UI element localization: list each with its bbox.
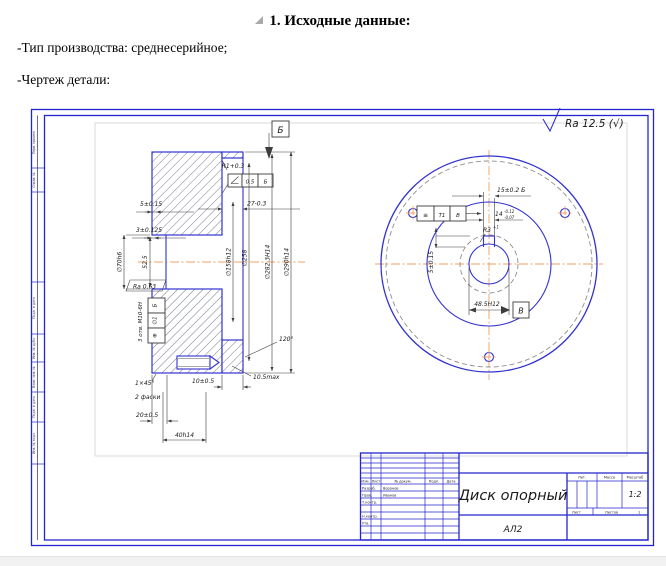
position-datum: Б (153, 303, 159, 307)
gdt-frame-position: Б ∅1 ⊕ 3 отв. М10-6H (138, 298, 165, 343)
roughness-text: Ra 12.5 (√) (565, 118, 624, 130)
sheets-value: 1 (638, 511, 640, 515)
svg-text:∅70h6: ∅70h6 (117, 252, 124, 273)
gdt-frame-slope: 0.5 Б (223, 174, 274, 193)
outline-collapse-icon[interactable] (255, 16, 263, 24)
frame-field-inv-podl: Инв. № подл. (32, 432, 36, 454)
row-razrab-name: Воронов (383, 487, 398, 491)
frame-field-inv-dubl: Инв. № дубл. (32, 337, 36, 359)
svg-text:20±0.5: 20±0.5 (136, 412, 158, 419)
svg-text:15±0.2 Б: 15±0.2 Б (497, 187, 525, 194)
svg-text:52.5: 52.5 (142, 255, 149, 269)
general-roughness-note: Ra 12.5 (√) (543, 108, 624, 131)
dim-r3: R3 +1 (480, 225, 499, 243)
slope-datum: Б (264, 180, 268, 186)
row-utv: Утв. (362, 522, 369, 526)
frame-field-podp-data-1: Подп. и дата (32, 297, 36, 319)
dim-r1: R1+0.3 (222, 161, 245, 170)
scale-value: 1:2 (629, 490, 642, 499)
svg-text:5±0.15: 5±0.15 (428, 251, 435, 273)
sheets-label: Листов (605, 511, 618, 515)
document-page: 1. Исходные данные: -Тип производства: с… (0, 0, 666, 566)
row-nkontr: Н.контр. (362, 515, 378, 519)
svg-text:48.5H12: 48.5H12 (474, 301, 500, 308)
part-material: АЛ2 (503, 525, 523, 535)
row-prov: Пров. (362, 494, 372, 498)
part-name: Диск опорный (458, 488, 568, 504)
symmetry-value: Т1 (439, 213, 446, 219)
col-podp: Подп. (429, 480, 440, 484)
front-view: 15±0.2 Б 14 -0.12 -0.07 ≡ Т1 В (375, 150, 603, 380)
row-prov-name: Иванов (383, 494, 396, 498)
svg-text:∅258: ∅258 (242, 249, 249, 266)
svg-text:Ra 0.63: Ra 0.63 (133, 284, 156, 291)
paragraph-production-type: -Тип производства: среднесерийное; (17, 40, 227, 56)
frame-field-podp-data-2: Подп. и дата (32, 396, 36, 418)
datum-flag-text: В (518, 307, 524, 316)
dim-dia158: ∅158h12 (226, 202, 234, 322)
scale-label: Масштаб (627, 476, 644, 480)
dim-15: 15±0.2 Б (452, 187, 531, 196)
heading-text: 1. Исходные данные: (269, 13, 410, 29)
section-label-b: Б (265, 121, 289, 159)
svg-text:-0.12: -0.12 (504, 209, 515, 214)
svg-text:14: 14 (495, 211, 503, 218)
title-block: Изм. Лист № докум. Подп. Дата Разраб. Во… (361, 453, 649, 540)
row-tkontr: Т.контр. (361, 501, 377, 505)
svg-text:120°: 120° (279, 336, 293, 343)
tapped-hole-m10 (177, 356, 219, 369)
frame-field-perv-primen: Перв. примен. (32, 130, 36, 154)
page-bottom-strip (0, 556, 666, 566)
lit-label: Лит. (578, 476, 586, 480)
dim-40: 40h14 (163, 392, 206, 443)
dim-chamfer: 1×45° 2 фаски (135, 374, 160, 401)
position-symbol-icon: ⊕ (153, 333, 159, 338)
holes-note: 3 отв. М10-6H (138, 302, 144, 342)
row-razrab: Разраб. (362, 487, 376, 491)
svg-text:+1: +1 (493, 225, 499, 230)
drawing-canvas: Перв. примен. Справ. № Подп. и дата Инв.… (30, 108, 656, 548)
section-heading: 1. Исходные данные: (0, 13, 666, 30)
svg-text:∅158h12: ∅158h12 (226, 248, 233, 276)
svg-text:1×45°: 1×45° (135, 380, 154, 387)
svg-text:∅282.3H14: ∅282.3H14 (265, 245, 272, 280)
svg-text:10±0.5: 10±0.5 (192, 378, 214, 385)
symmetry-datum: В (456, 213, 460, 219)
svg-text:40h14: 40h14 (175, 432, 194, 439)
col-izm: Изм. (361, 480, 369, 484)
slope-value: 0.5 (246, 180, 255, 186)
gdt-frame-symmetry: ≡ Т1 В (417, 206, 481, 221)
position-value: ∅1 (153, 316, 159, 324)
sheet-frame: Перв. примен. Справ. № Подп. и дата Инв.… (32, 110, 654, 546)
dim-48-5: 48.5H12 В (469, 268, 529, 318)
col-list: Лист (372, 480, 381, 484)
paragraph-drawing-label: -Чертеж детали: (17, 72, 110, 88)
dim-10: 10±0.5 (192, 375, 251, 390)
roughness-check-icon (543, 108, 560, 131)
sheet-label: Лист (572, 511, 581, 515)
svg-text:R3: R3 (483, 227, 491, 234)
svg-text:-0.07: -0.07 (504, 215, 515, 220)
svg-text:10.5max: 10.5max (253, 374, 280, 381)
mass-label: Масса (604, 476, 615, 480)
frame-field-vzam-inv: Взам. инв. № (32, 366, 36, 388)
col-data: Дата (446, 480, 455, 484)
frame-field-sprav: Справ. № (32, 172, 36, 188)
section-view: Б R1+0.3 0.5 Б (117, 121, 306, 443)
svg-text:∅290h14: ∅290h14 (284, 248, 291, 276)
svg-text:2 фаски: 2 фаски (135, 394, 160, 401)
svg-text:5±0.15: 5±0.15 (140, 201, 162, 208)
embedded-part-drawing[interactable]: Перв. примен. Справ. № Подп. и дата Инв.… (30, 108, 656, 548)
svg-text:3±0.125: 3±0.125 (136, 227, 162, 234)
symmetry-icon: ≡ (423, 212, 428, 219)
col-dokum: № докум. (394, 480, 411, 484)
svg-text:27-0.3: 27-0.3 (247, 201, 267, 208)
dim-52-5: 52.5 (142, 237, 150, 287)
section-balloon-text: Б (277, 126, 283, 136)
dim-120: 120° (245, 336, 293, 357)
datum-triangle-icon (501, 306, 510, 314)
